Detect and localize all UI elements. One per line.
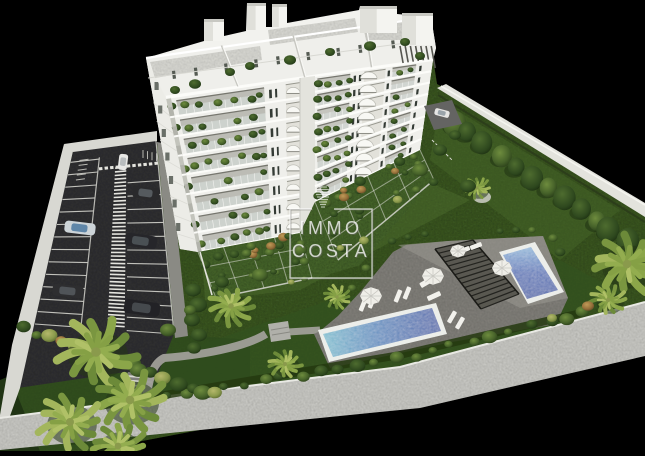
- svg-text:IMMO: IMMO: [300, 218, 363, 238]
- svg-text:COSTA: COSTA: [292, 241, 370, 261]
